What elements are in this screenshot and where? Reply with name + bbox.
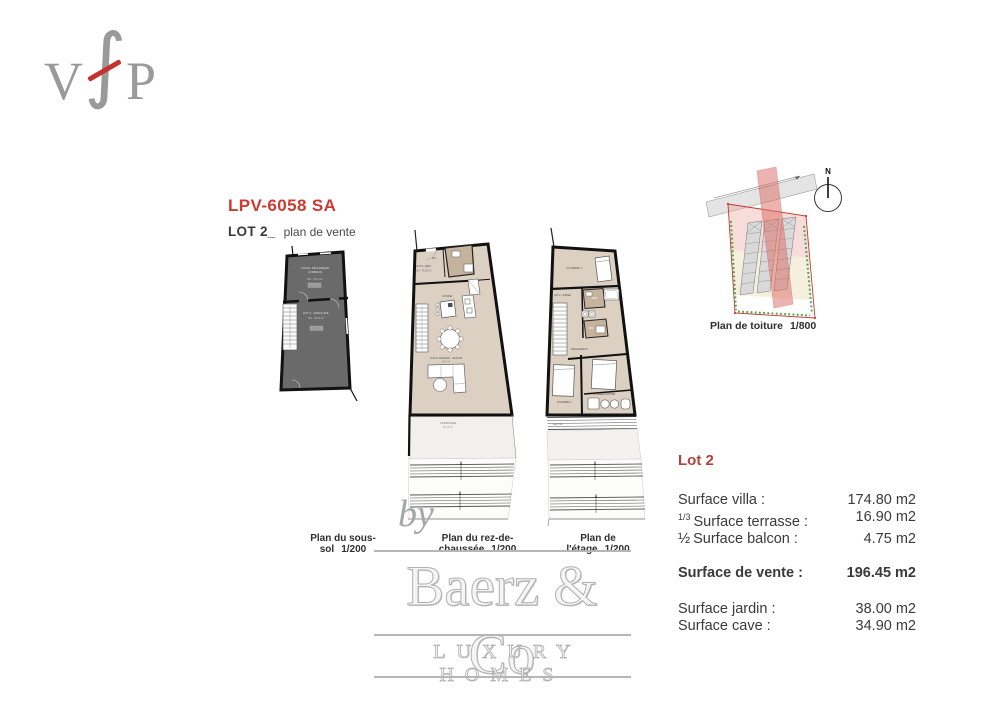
balcony-label: BALCON [553, 423, 562, 426]
lot-side-area: SU : 76.35 m² [416, 270, 432, 273]
caption-toiture: Plan de toiture1/800 [710, 320, 816, 332]
vfp-logo: V ∫ P [26, 28, 176, 128]
logo-integral-f: ∫ [84, 24, 127, 106]
surface-label: Surface jardin : [678, 601, 776, 618]
watermark-rule-middle [374, 634, 631, 636]
surface-row-total: Surface de vente : 196.45 m2 [678, 565, 916, 582]
surface-value: 16.90 m2 [856, 509, 916, 531]
page-title: LPV-6058 SA [228, 196, 356, 216]
caption-text: Plan de toiture [710, 320, 783, 332]
etage-balcony-garden: BALCON [547, 417, 645, 527]
plan-de-vente-label: plan de vente [284, 225, 356, 239]
surface-row-cave: Surface cave : 34.90 m2 [678, 618, 916, 635]
watermark-rule-bottom [374, 676, 631, 678]
surface-label: 1/3Surface terrasse : [678, 509, 808, 531]
lot-label: LOT 2_ [228, 224, 276, 239]
surface-value: 4.75 m2 [864, 531, 916, 548]
plan-etage: BALCON [538, 218, 650, 530]
plan-de-vente-page: V ∫ P LPV-6058 SA LOT 2_plan de vente [0, 0, 1000, 708]
dim-badge [310, 326, 323, 331]
lot-side-label: LOT 2 - ETAGE [554, 294, 571, 297]
terrace-area-label: 50.70 m² [443, 425, 453, 429]
surface-row-jardin: Surface jardin : 38.00 m2 [678, 601, 916, 618]
plan-sous-sol: LOCAL TECHNIQUE COMMUN SU : 13.4 m² LOT … [268, 238, 368, 408]
caption-scale: 1/200 [341, 544, 366, 555]
bedroom2-label: CHAMBRE 2 [557, 401, 572, 404]
surface-row-terrasse: 1/3Surface terrasse : 16.90 m2 [678, 509, 916, 531]
rdc-stairs [416, 304, 428, 352]
north-label: N [825, 167, 831, 176]
surface-label: Surface de vente : [678, 565, 803, 582]
wc-label: WC [432, 256, 436, 260]
lot-side-label: LOT 2 - RDC [416, 264, 431, 268]
room-label: COMMUN [308, 270, 322, 274]
caption-scale: 1/800 [790, 320, 816, 332]
kitchen-label: CUISINE [442, 294, 453, 298]
logo-letter-v: V [44, 54, 83, 108]
living-area-label: 40.7 m² [442, 361, 450, 364]
fraction-prefix: 1/3 [678, 512, 691, 522]
master-label: CHAMBRE MASTER [593, 393, 616, 396]
hall-label: DEGAGEMENT [571, 348, 589, 351]
surface-value: 38.00 m2 [856, 601, 916, 618]
sde-label: SDE [589, 327, 594, 330]
rdc-dining-table [437, 326, 463, 352]
room-area-label: SU : 13.4 m² [307, 277, 323, 281]
header-block: LPV-6058 SA LOT 2_plan de vente [228, 196, 356, 241]
watermark-rule-top [374, 550, 631, 552]
watermark-tagline: LUXURY HOMES [368, 641, 636, 687]
basement-stairs [283, 304, 297, 350]
surface-value: 174.80 m2 [847, 492, 916, 509]
surface-row-villa: Surface villa : 174.80 m2 [678, 492, 916, 509]
room-area-label: SU : 34.9 m² [308, 316, 324, 320]
north-arrow: N [815, 167, 842, 212]
plan-rdc: TERRASSE 50.70 m² WC LOT 2 - RDC SU : 76… [398, 218, 523, 530]
surface-label: Surface villa : [678, 492, 765, 509]
room-label: LOT 2 - SOUS-SOL [303, 311, 330, 315]
surface-table: Lot 2 Surface villa : 174.80 m2 1/3Surfa… [678, 452, 916, 635]
surface-value: 34.90 m2 [856, 618, 916, 635]
watermark-by: by [398, 492, 434, 536]
terrace-label: TERRASSE [440, 421, 456, 425]
living-label: CUIS & MANGER - SEJOUR [430, 357, 463, 360]
surface-row-balcon: ½Surface balcon : 4.75 m2 [678, 531, 916, 548]
logo-letter-p: P [126, 54, 156, 108]
surface-label: ½Surface balcon : [678, 531, 798, 548]
sdb-label: SDB [591, 297, 596, 300]
plan-toiture: N [700, 158, 860, 340]
dim-badge [308, 283, 321, 288]
surface-table-title: Lot 2 [678, 452, 916, 469]
surface-value: 196.45 m2 [847, 565, 916, 582]
fraction-prefix: ½ [678, 531, 690, 547]
surface-label: Surface cave : [678, 618, 771, 635]
bedroom3-label: CHAMBRE 3 [566, 266, 582, 270]
